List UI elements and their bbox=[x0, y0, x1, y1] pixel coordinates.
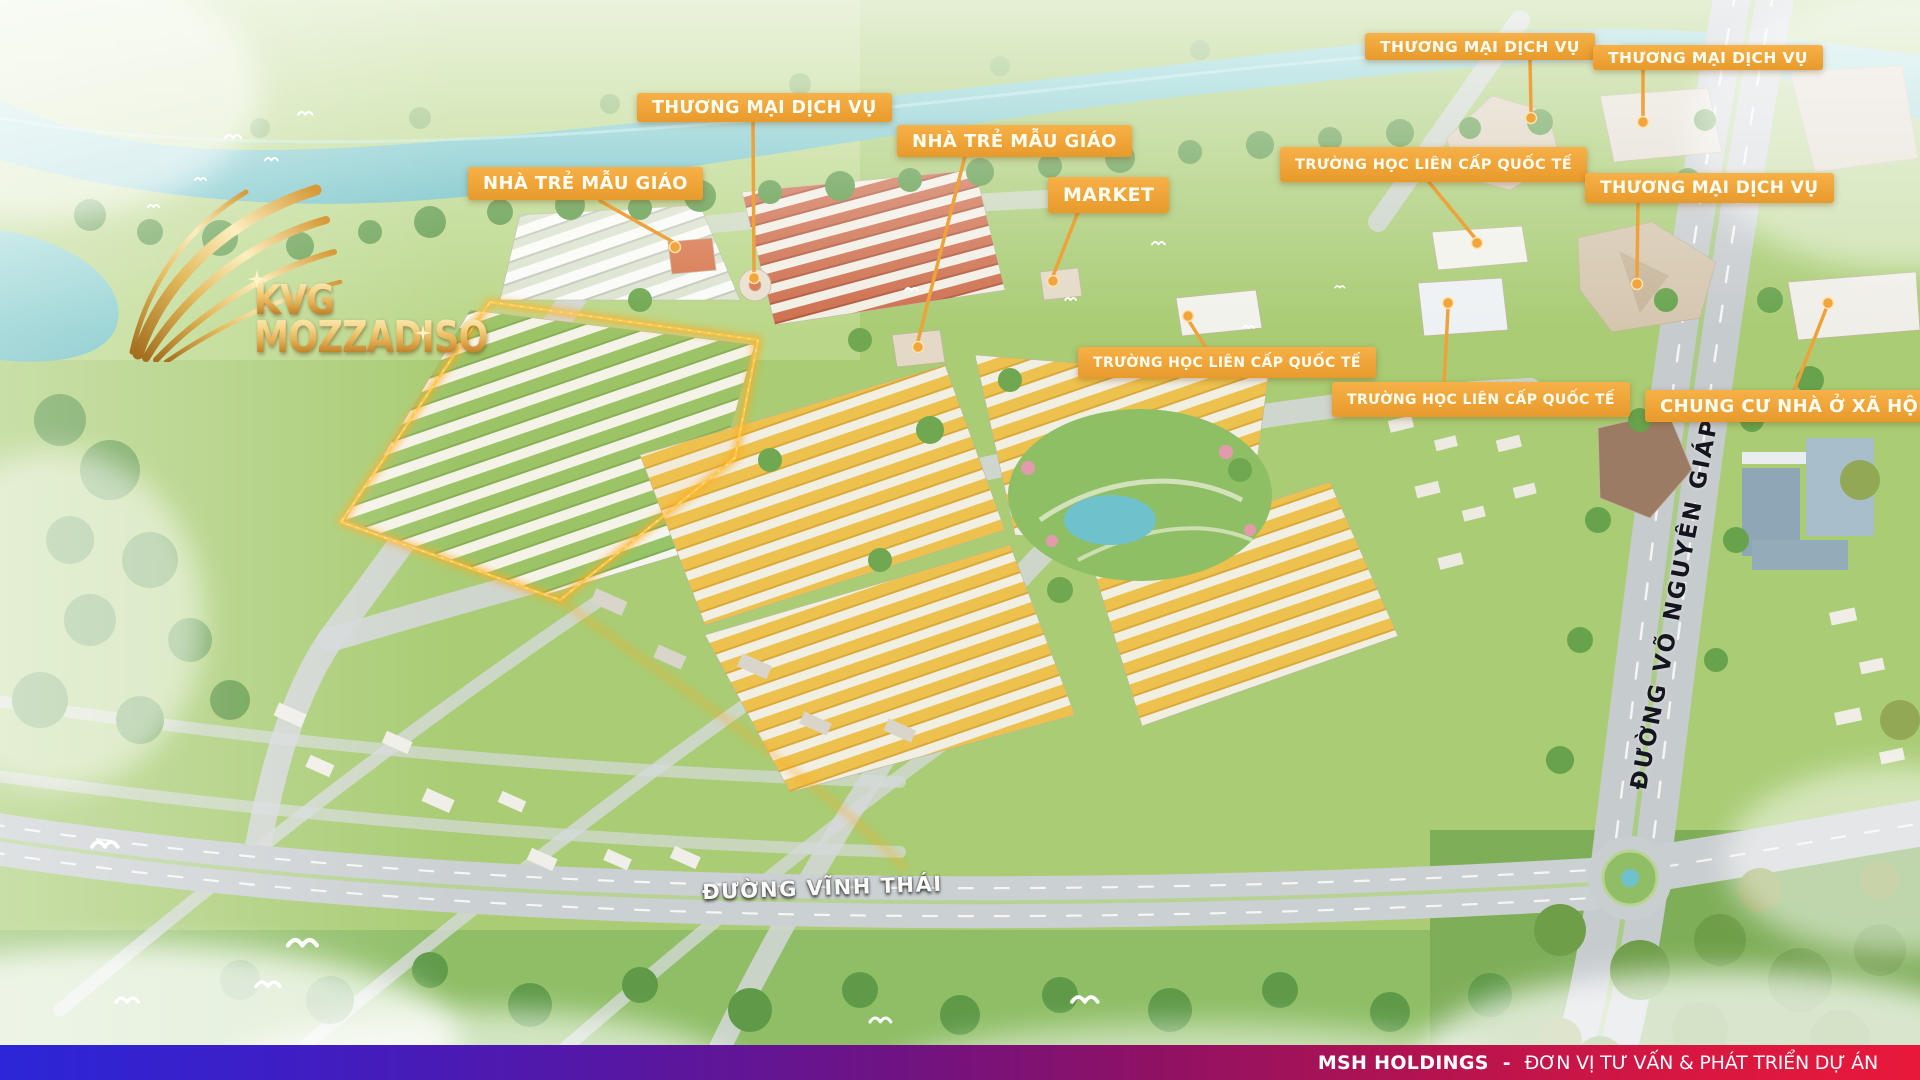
masterplan-poster: NHÀ TRẺ MẪU GIÁO THƯƠNG MẠI DỊCH VỤ NHÀ … bbox=[0, 0, 1920, 1080]
sparkle-icon bbox=[246, 268, 268, 290]
project-logo: KVG MOZZADISO bbox=[118, 176, 518, 386]
label-commercial-ne1: THƯƠNG MẠI DỊCH VỤ bbox=[1365, 33, 1595, 60]
label-commercial-ne2: THƯƠNG MẠI DỊCH VỤ bbox=[1593, 45, 1823, 70]
footer-tagline: ĐƠN VỊ TƯ VẤN & PHÁT TRIỂN DỰ ÁN bbox=[1525, 1052, 1878, 1074]
roundabout bbox=[1588, 836, 1672, 920]
label-kindergarten-center: NHÀ TRẺ MẪU GIÁO bbox=[897, 125, 1132, 157]
footer-company: MSH HOLDINGS bbox=[1318, 1052, 1489, 1074]
label-school-north: TRƯỜNG HỌC LIÊN CẤP QUỐC TẾ bbox=[1280, 147, 1587, 182]
label-market: MARKET bbox=[1048, 177, 1169, 213]
label-commercial-north: THƯƠNG MẠI DỊCH VỤ bbox=[637, 93, 892, 122]
label-school-center: TRƯỜNG HỌC LIÊN CẤP QUỐC TẾ bbox=[1078, 347, 1376, 378]
logo-project-name: MOZZADISO bbox=[254, 312, 488, 363]
sparkle-icon bbox=[414, 324, 432, 342]
masterplan-render bbox=[0, 0, 1920, 1080]
central-park bbox=[1008, 409, 1272, 581]
label-commercial-east: THƯƠNG MẠI DỊCH VỤ bbox=[1585, 173, 1834, 203]
footer-bar: MSH HOLDINGS - ĐƠN VỊ TƯ VẤN & PHÁT TRIỂ… bbox=[0, 1045, 1920, 1080]
footer-separator: - bbox=[1503, 1052, 1511, 1074]
label-social-housing: CHUNG CƯ NHÀ Ở XÃ HỘI bbox=[1645, 390, 1920, 422]
label-school-east: TRƯỜNG HỌC LIÊN CẤP QUỐC TẾ bbox=[1332, 382, 1630, 417]
